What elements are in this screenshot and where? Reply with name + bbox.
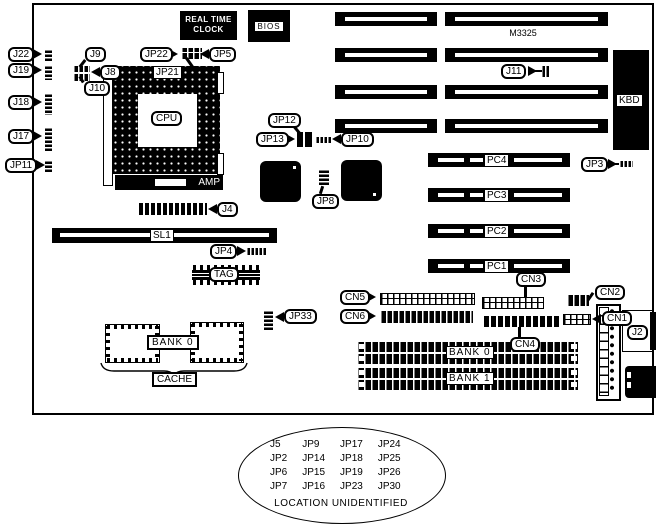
label-pc4: PC4	[484, 154, 509, 167]
label-j19: J19	[8, 63, 34, 78]
label-jp5: JP5	[209, 47, 236, 62]
jp33-connector	[264, 310, 273, 331]
chipset-qfp-left	[260, 161, 301, 202]
cn4-connector	[482, 316, 560, 327]
leader-j18	[33, 97, 42, 107]
leader-jp11	[36, 160, 45, 170]
label-jp21: JP21	[153, 66, 182, 79]
motherboard-diagram: REAL TIME CLOCK BIOS M3325 J11 KBD JP3 J…	[0, 0, 656, 524]
label-cn3: CN3	[516, 272, 546, 287]
isa-slot-2-left	[335, 48, 437, 62]
j2-edge-connector	[650, 312, 656, 350]
leader-jp33	[275, 312, 284, 322]
leader-j8	[91, 67, 100, 77]
label-jp4: JP4	[210, 244, 237, 259]
label-cn6: CN6	[340, 309, 370, 324]
leader-cn1	[592, 314, 601, 324]
board-marking: M3325	[498, 28, 548, 38]
label-cache-bank0: BANK 0	[147, 335, 199, 350]
jp11-connector	[45, 160, 52, 173]
kbd-label: KBD	[616, 94, 643, 107]
jp4-connector	[246, 248, 267, 255]
rtc-chip: REAL TIME CLOCK	[180, 11, 237, 40]
legend-cell: J5	[270, 439, 287, 450]
legend-cell: JP30	[378, 481, 401, 492]
legend-cell: JP17	[340, 439, 363, 450]
cn6-connector	[380, 311, 473, 323]
label-j4: J4	[217, 202, 238, 217]
isa-slot-4-right	[445, 119, 608, 133]
isa-slot-2-right	[445, 48, 608, 62]
leader-jp4	[237, 246, 246, 256]
isa-slot-3-right	[445, 85, 608, 99]
legend-cell: JP14	[302, 453, 325, 464]
legend-cell: JP2	[270, 453, 287, 464]
chipset-qfp-right	[341, 160, 382, 201]
legend-cell: JP26	[378, 467, 401, 478]
label-jp10: JP10	[341, 132, 374, 147]
j4-connector	[137, 203, 207, 215]
label-jp22: JP22	[140, 47, 173, 62]
label-j9: J9	[85, 47, 106, 62]
label-pc1: PC1	[484, 260, 509, 273]
label-cn2: CN2	[595, 285, 625, 300]
cpu-socket-tab-top	[217, 72, 224, 94]
amp-block: AMP	[115, 175, 223, 190]
label-j2: J2	[627, 325, 648, 340]
j22-connector	[45, 49, 52, 62]
label-jp12: JP12	[268, 113, 301, 128]
cpu-socket-tab-bottom	[217, 153, 224, 175]
legend-caption: LOCATION UNIDENTIFIED	[238, 498, 444, 509]
jp12-jp13-connector	[297, 132, 312, 147]
jp22-jp5-connector	[181, 48, 202, 59]
j19-connector	[45, 65, 52, 80]
rtc-label-line1: REAL TIME	[180, 15, 237, 25]
isa-slot-4-left	[335, 119, 437, 133]
legend-cell: JP15	[302, 467, 325, 478]
bios-label: BIOS	[255, 22, 283, 31]
leader-jp5	[200, 49, 209, 59]
bios-chip: BIOS	[248, 10, 290, 42]
legend-grid: J5 JP9 JP17 JP24 JP2 JP14 JP18 JP25 JP6 …	[270, 439, 401, 492]
label-jp11: JP11	[5, 158, 37, 173]
label-bank0: BANK 0	[446, 346, 494, 359]
label-j17: J17	[8, 129, 34, 144]
label-jp8: JP8	[312, 194, 339, 209]
label-sl1: SL1	[150, 229, 174, 242]
rtc-label-line2: CLOCK	[180, 25, 237, 34]
jp10-connector	[315, 137, 331, 143]
j11-connector	[541, 66, 549, 77]
label-j11: J11	[501, 64, 526, 79]
leader-j17	[33, 131, 42, 141]
label-jp13: JP13	[256, 132, 289, 147]
label-pc3: PC3	[484, 189, 509, 202]
label-bank1: BANK 1	[446, 372, 494, 385]
label-cache: CACHE	[152, 372, 197, 387]
j18-connector	[45, 93, 52, 115]
cn1-connector	[563, 314, 591, 325]
leader-jp10	[332, 134, 341, 144]
legend-cell: JP16	[302, 481, 325, 492]
label-jp3: JP3	[581, 157, 608, 172]
cn2-connector	[567, 295, 589, 306]
label-j10: J10	[84, 81, 110, 96]
leader-j19	[33, 65, 42, 75]
label-tag: TAG	[209, 267, 239, 282]
label-pc2: PC2	[484, 225, 509, 238]
label-j8: J8	[100, 65, 121, 80]
j17-connector	[45, 127, 52, 152]
jp8-connector	[319, 169, 329, 186]
legend-cell: JP19	[340, 467, 363, 478]
leader-j4	[208, 204, 217, 214]
amp-label: AMP	[198, 177, 220, 188]
din-connector	[625, 366, 656, 398]
label-cn5: CN5	[340, 290, 370, 305]
isa-slot-3-left	[335, 85, 437, 99]
legend-cell: JP24	[378, 439, 401, 450]
cn3-connector	[482, 297, 544, 309]
label-j18: J18	[8, 95, 34, 110]
leader-j22	[33, 49, 42, 59]
legend-cell: JP7	[270, 481, 287, 492]
label-j22: J22	[8, 47, 34, 62]
isa-slot-1-right	[445, 12, 608, 26]
isa-slot-1-left	[335, 12, 437, 26]
cn5-connector	[380, 293, 475, 305]
cpu-label: CPU	[151, 111, 182, 126]
legend-cell: JP9	[302, 439, 325, 450]
legend-cell: JP23	[340, 481, 363, 492]
jp3-connector	[619, 161, 633, 167]
label-jp33: JP33	[284, 309, 317, 324]
legend-cell: JP25	[378, 453, 401, 464]
legend-cell: JP18	[340, 453, 363, 464]
legend-cell: JP6	[270, 467, 287, 478]
label-cn1: CN1	[602, 311, 632, 326]
leader-cn3	[524, 286, 527, 297]
label-cn4: CN4	[510, 337, 540, 352]
